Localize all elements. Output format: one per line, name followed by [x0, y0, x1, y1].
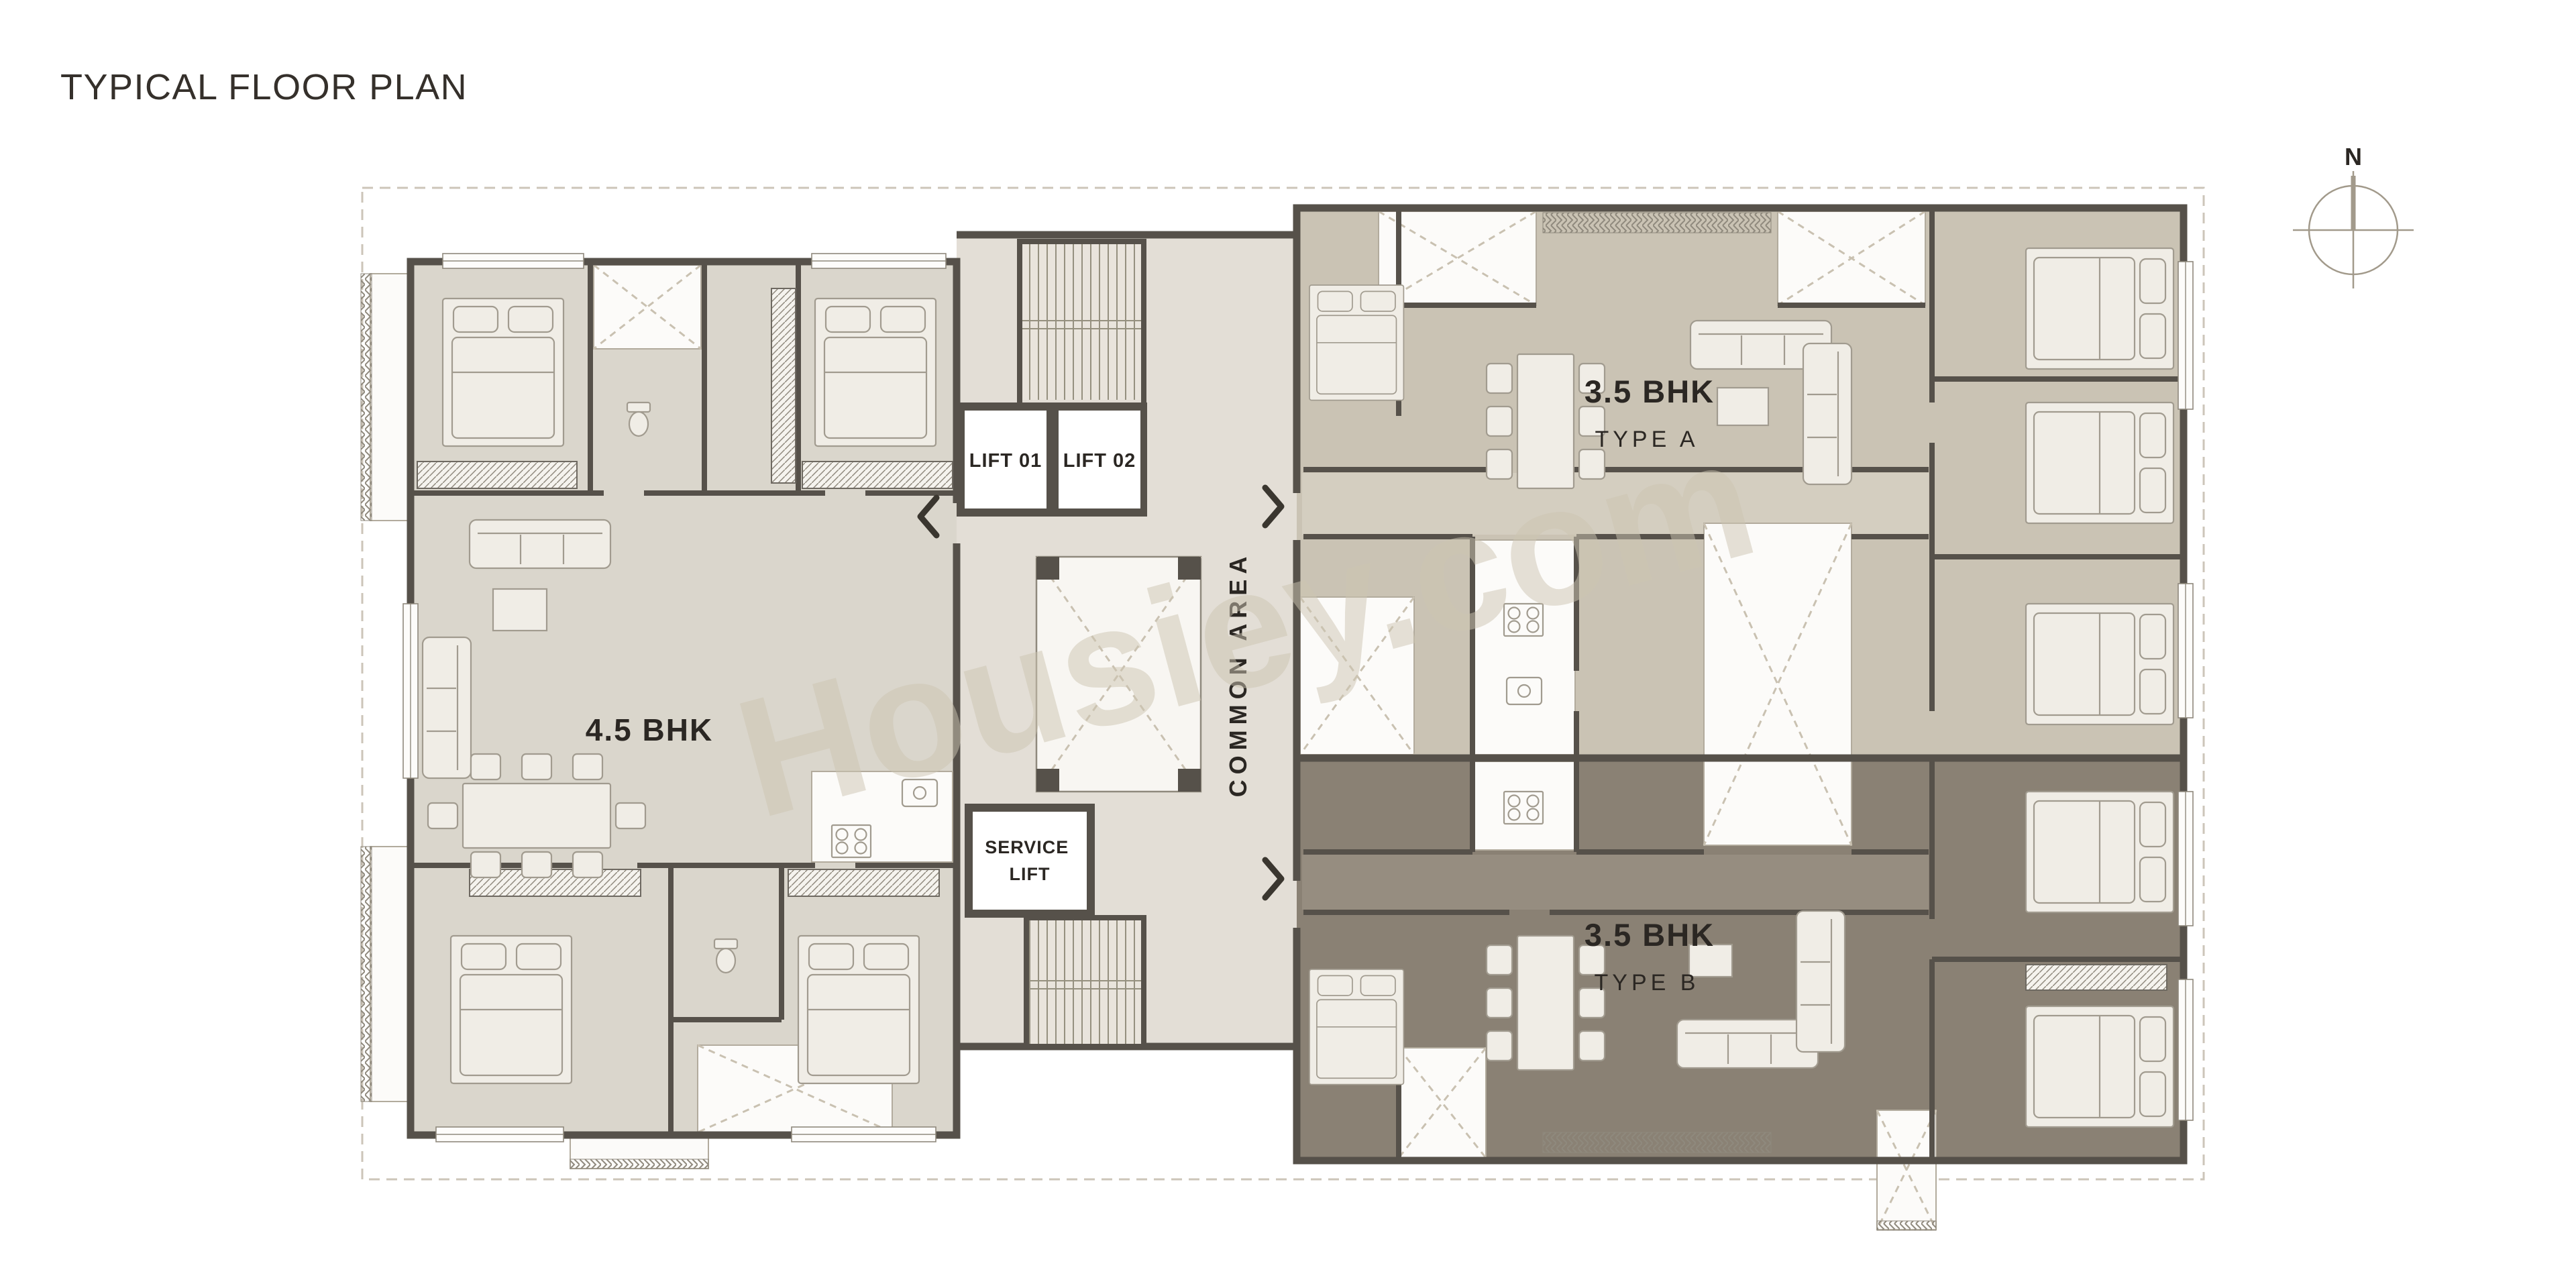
sofa — [1796, 911, 1845, 1052]
bed — [1309, 285, 1403, 400]
balcony — [570, 1135, 708, 1169]
type-b-internal-corridor — [1302, 855, 1929, 910]
bed — [1309, 969, 1403, 1085]
bed — [2026, 248, 2173, 369]
lift-block: LIFT 01 LIFT 02 — [957, 402, 1147, 517]
sofa — [470, 520, 610, 568]
lift-01-label: LIFT 01 — [969, 450, 1042, 472]
floor-plan-page: 4.5 BHK LIFT 01 LIFT 02 — [0, 0, 2576, 1288]
sofa — [1803, 343, 1851, 484]
balcony-railing — [1543, 213, 1771, 233]
unit-45bhk-label: 4.5 BHK — [586, 712, 713, 747]
staircase — [1020, 241, 1144, 402]
bed — [2026, 792, 2173, 912]
unit-type-b-label: 3.5 BHK — [1585, 917, 1715, 953]
toilet — [714, 939, 737, 973]
balcony — [361, 274, 411, 521]
bed — [815, 299, 936, 446]
dining-table — [1487, 936, 1605, 1070]
duct-void — [1399, 1048, 1486, 1158]
balcony-railing — [1543, 1132, 1771, 1152]
duct-void — [594, 265, 701, 349]
staircase — [1026, 918, 1144, 1044]
duct-void — [1778, 211, 1925, 305]
bed — [2026, 1006, 2173, 1127]
floor-plan-drawing: 4.5 BHK LIFT 01 LIFT 02 — [0, 0, 2576, 1288]
balcony — [1877, 1110, 1936, 1230]
unit-type-b-sublabel: TYPE B — [1595, 970, 1700, 996]
sofa — [423, 637, 471, 778]
window — [2178, 262, 2193, 1120]
bed — [2026, 402, 2173, 523]
coffee-table — [493, 589, 547, 631]
bed — [2026, 604, 2173, 724]
service-lift: SERVICE LIFT — [965, 804, 1095, 918]
bed — [451, 936, 572, 1083]
page-title: TYPICAL FLOOR PLAN — [60, 67, 468, 107]
balcony — [361, 847, 411, 1102]
compass-north-label: N — [2345, 143, 2362, 170]
kitchen-counter — [1474, 761, 1575, 850]
bed — [443, 299, 563, 446]
unit-type-a-label: 3.5 BHK — [1585, 374, 1715, 409]
bed — [798, 936, 919, 1083]
lift-02-label: LIFT 02 — [1063, 450, 1136, 472]
toilet — [627, 402, 650, 436]
